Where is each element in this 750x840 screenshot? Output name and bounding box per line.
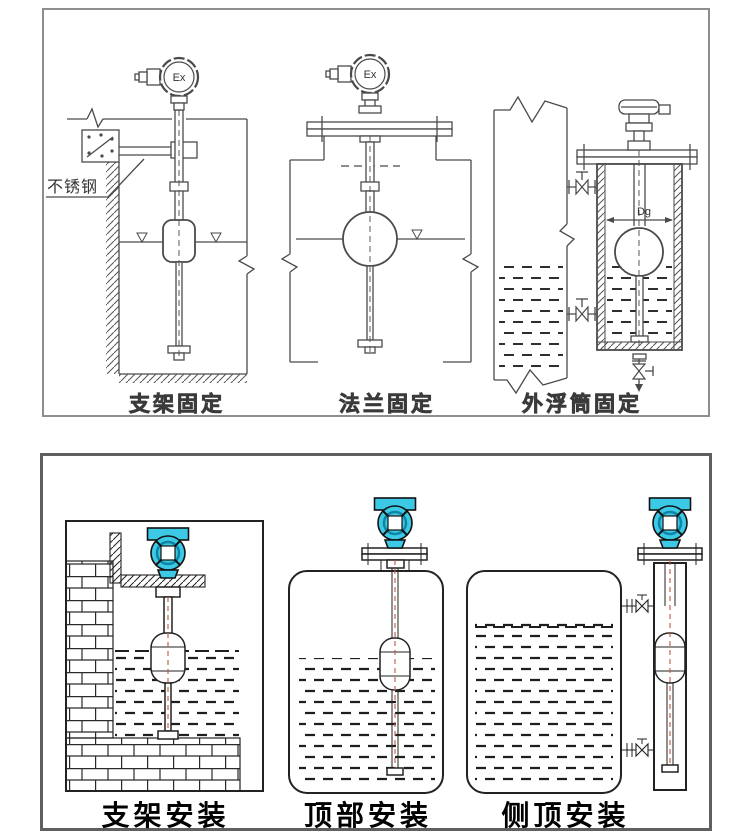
compact-transmitter-head [619, 100, 670, 150]
caption-bracket-fixing: 支架固定 [102, 388, 252, 418]
water-level-symbol [137, 233, 147, 242]
inlet-valve-lower [567, 299, 597, 321]
caption-flange-fixing: 法兰固定 [312, 388, 462, 418]
dg-label: Dg [637, 206, 651, 218]
ex-transmitter-head [135, 58, 198, 110]
cable-entry [659, 105, 670, 114]
installation-methods-panel: 支架安装 顶部安装 侧顶安装 [40, 453, 712, 831]
stem-foot [662, 765, 678, 772]
diagram-bracket-fixing: Ex 不锈钢 [46, 58, 254, 383]
caption-top-installation: 顶部安装 [278, 794, 458, 834]
installation-methods-drawing [43, 456, 709, 828]
mounting-flange [307, 116, 452, 142]
diagram-top-installation [289, 498, 443, 793]
diagram-side-top-installation [467, 498, 702, 793]
connection-valve-upper [621, 595, 654, 613]
brick-wall [66, 561, 113, 738]
page: Ex 不锈钢 [0, 0, 750, 840]
diagram-external-chamber-fixing: Dg [494, 97, 697, 393]
transmitter-head [375, 498, 416, 548]
caption-bracket-installation: 支架安装 [68, 794, 263, 834]
fixing-methods-drawing: Ex 不锈钢 [44, 10, 708, 415]
diagram-bracket-installation [66, 521, 263, 791]
level-sensor: Ex [135, 58, 198, 360]
ex-label: Ex [364, 69, 377, 81]
float [655, 633, 685, 683]
wall-hatch [106, 162, 119, 374]
sensor-stem-lower [636, 276, 643, 342]
stem-foot [387, 768, 403, 775]
float [151, 633, 185, 683]
level-sensor: Ex [326, 55, 397, 353]
stem-collar [156, 587, 180, 597]
water [475, 623, 613, 786]
ex-label: Ex [173, 72, 186, 84]
wall-mount-plate [82, 130, 119, 162]
brick-base [66, 738, 240, 791]
fixing-methods-panel: Ex 不锈钢 [42, 8, 710, 417]
tank-water [499, 258, 563, 372]
caption-side-top-installation: 侧顶安装 [473, 794, 658, 834]
diagram-flange-fixing: Ex [282, 55, 478, 362]
stainless-steel-annotation: 不锈钢 [46, 159, 144, 197]
bracket-post [110, 533, 121, 583]
process-tank [494, 97, 574, 393]
water-level-symbol [412, 230, 422, 239]
water [299, 658, 435, 786]
stem-foot [158, 731, 178, 739]
water-level-symbol [211, 233, 221, 242]
inlet-valve-upper [567, 172, 597, 194]
stainless-steel-label: 不锈钢 [47, 178, 98, 196]
mounting-arm [119, 142, 197, 158]
transmitter-head [650, 498, 691, 548]
ground-hatch [119, 374, 247, 383]
connection-valve-lower [621, 739, 654, 757]
caption-external-chamber-fixing: 外浮筒固定 [492, 388, 672, 418]
drain-valve [632, 354, 653, 392]
stem-foot [631, 336, 648, 342]
ex-transmitter-head [326, 55, 389, 107]
